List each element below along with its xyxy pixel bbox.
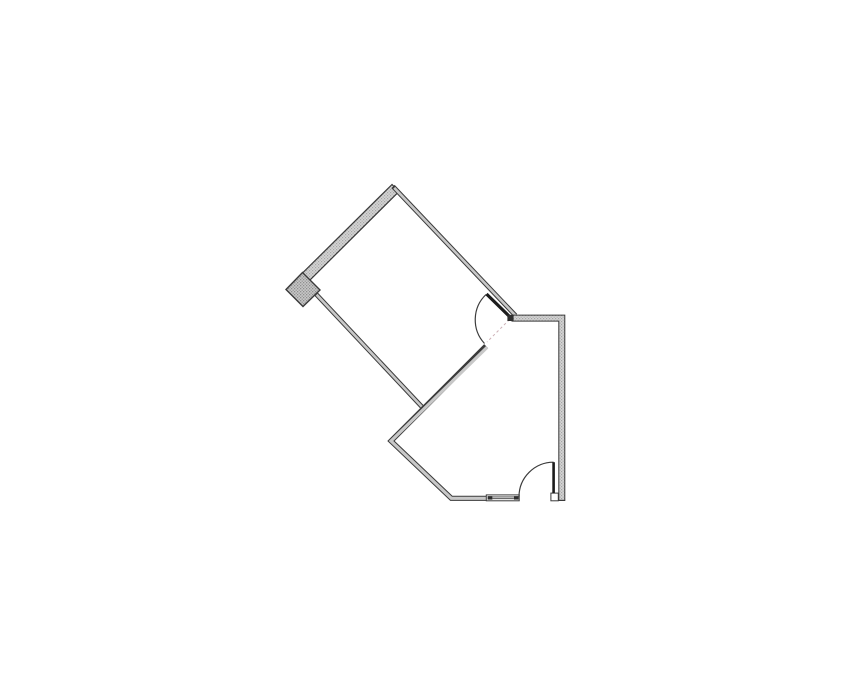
interior-and-bottom-wall [391, 347, 488, 498]
floor-plan-drawing [0, 0, 855, 678]
door-jamb-block [551, 493, 558, 501]
wall-end-block [286, 273, 320, 307]
lower-door-arc [519, 462, 554, 497]
window-mullion-left [488, 496, 493, 500]
interior-and-bottom-wall [391, 346, 488, 498]
floor-plan-page [0, 0, 855, 678]
upper-door-arc [475, 295, 486, 344]
upper-door-hinge-block [507, 315, 513, 321]
window-mullion-right [514, 496, 519, 500]
exterior-thick-wall [303, 185, 400, 281]
bedroom-left-wall [317, 295, 424, 409]
floor-plan-layers [286, 185, 565, 501]
upper-door-swing-dash-line [487, 320, 510, 343]
bedroom-top-right-wall [394, 188, 515, 316]
